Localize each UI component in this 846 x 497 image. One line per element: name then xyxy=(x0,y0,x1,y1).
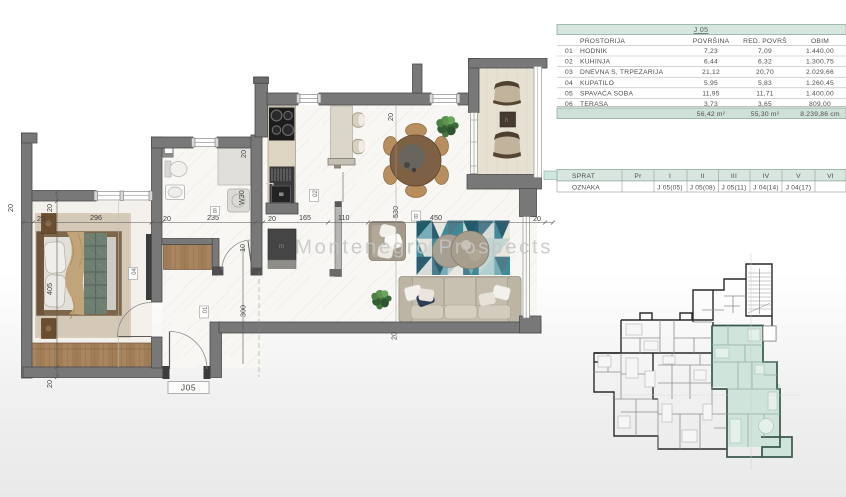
svg-text:165: 165 xyxy=(299,213,311,222)
svg-text:05: 05 xyxy=(565,90,573,97)
svg-text:20: 20 xyxy=(163,214,171,223)
svg-text:m: m xyxy=(279,244,284,250)
svg-text:20: 20 xyxy=(268,214,276,223)
svg-text:OBIM: OBIM xyxy=(811,38,829,45)
svg-text:I: I xyxy=(669,173,671,180)
svg-text:7,09: 7,09 xyxy=(758,48,772,55)
svg-text:J 04(14): J 04(14) xyxy=(753,184,778,191)
svg-text:Montenegro Prospects: Montenegro Prospects xyxy=(295,236,553,259)
svg-text:W30: W30 xyxy=(237,190,246,205)
svg-text:21,12: 21,12 xyxy=(702,69,720,76)
svg-text:TERASA: TERASA xyxy=(580,101,609,108)
svg-text:03: 03 xyxy=(565,69,573,76)
svg-text:20: 20 xyxy=(37,214,45,223)
svg-text:20: 20 xyxy=(45,204,54,212)
svg-text:PROSTORIJA: PROSTORIJA xyxy=(580,38,625,45)
svg-text:VI: VI xyxy=(827,173,834,180)
svg-text:06: 06 xyxy=(565,101,573,108)
svg-text:6,32: 6,32 xyxy=(758,59,772,66)
svg-text:II: II xyxy=(700,173,704,180)
svg-text:405: 405 xyxy=(45,283,54,295)
svg-text:809,00: 809,00 xyxy=(809,101,831,108)
svg-text:1.260,45: 1.260,45 xyxy=(806,80,834,87)
svg-text:B: B xyxy=(414,214,418,221)
svg-text:296: 296 xyxy=(90,213,102,222)
svg-text:3,65: 3,65 xyxy=(758,101,772,108)
svg-text:J05: J05 xyxy=(181,383,196,393)
svg-text:SPAVAĆA SOBA: SPAVAĆA SOBA xyxy=(580,88,633,97)
svg-text:530: 530 xyxy=(391,206,400,218)
svg-text:5,95: 5,95 xyxy=(704,80,718,87)
svg-text:J 05(08): J 05(08) xyxy=(690,184,715,191)
svg-text:J 04(17): J 04(17) xyxy=(786,184,811,191)
svg-text:01: 01 xyxy=(203,306,209,313)
svg-text:RED. POVRŠ: RED. POVRŠ xyxy=(743,36,787,45)
svg-text:10: 10 xyxy=(238,244,247,252)
svg-text:2.029,66: 2.029,66 xyxy=(806,69,834,76)
svg-text:3,73: 3,73 xyxy=(704,101,718,108)
svg-text:5,83: 5,83 xyxy=(758,80,772,87)
svg-text:1.440,00: 1.440,00 xyxy=(806,48,834,55)
svg-text:04: 04 xyxy=(132,268,138,275)
svg-text:B: B xyxy=(213,209,217,215)
svg-text:1.300,75: 1.300,75 xyxy=(806,59,834,66)
svg-text:HODNIK: HODNIK xyxy=(580,48,608,55)
svg-text:V: V xyxy=(796,173,801,180)
svg-text:55,30 m²: 55,30 m² xyxy=(751,111,780,118)
svg-text:56,42 m²: 56,42 m² xyxy=(697,111,726,118)
svg-text:POVRŠINA: POVRŠINA xyxy=(693,36,730,45)
svg-text:01: 01 xyxy=(565,48,573,55)
svg-text:02: 02 xyxy=(565,59,573,66)
svg-text:OZNAKA: OZNAKA xyxy=(572,184,600,191)
svg-text:KUPATILO: KUPATILO xyxy=(580,80,614,87)
svg-text:IV: IV xyxy=(763,173,770,180)
svg-text:h: h xyxy=(505,118,508,124)
svg-text:20: 20 xyxy=(386,113,395,121)
svg-text:11,95: 11,95 xyxy=(702,90,720,97)
svg-text:02: 02 xyxy=(313,190,319,197)
svg-text:20: 20 xyxy=(533,214,541,223)
svg-text:20: 20 xyxy=(6,204,15,212)
svg-text:7,23: 7,23 xyxy=(704,48,718,55)
svg-text:SPRAT: SPRAT xyxy=(572,173,595,180)
svg-text:20: 20 xyxy=(239,150,248,158)
svg-text:1.400,00: 1.400,00 xyxy=(806,90,834,97)
svg-text:J 05(05): J 05(05) xyxy=(657,184,682,191)
svg-text:6,44: 6,44 xyxy=(704,59,718,66)
svg-text:J 05: J 05 xyxy=(694,27,709,34)
svg-text:KUHINJA: KUHINJA xyxy=(580,59,611,66)
svg-text:110: 110 xyxy=(338,213,349,222)
svg-text:20: 20 xyxy=(390,332,399,340)
svg-text:450: 450 xyxy=(430,213,442,222)
svg-text:11,71: 11,71 xyxy=(756,90,774,97)
svg-text:8.239,86 cm: 8.239,86 cm xyxy=(800,111,840,118)
svg-text:04: 04 xyxy=(565,80,573,87)
svg-text:20,70: 20,70 xyxy=(756,69,774,76)
svg-text:III: III xyxy=(731,173,737,180)
svg-text:J 05(11): J 05(11) xyxy=(722,184,747,191)
svg-text:20: 20 xyxy=(45,380,54,388)
svg-text:DNEVNA S, TRPEZARIJA: DNEVNA S, TRPEZARIJA xyxy=(580,69,664,76)
svg-text:Pr: Pr xyxy=(634,173,642,180)
